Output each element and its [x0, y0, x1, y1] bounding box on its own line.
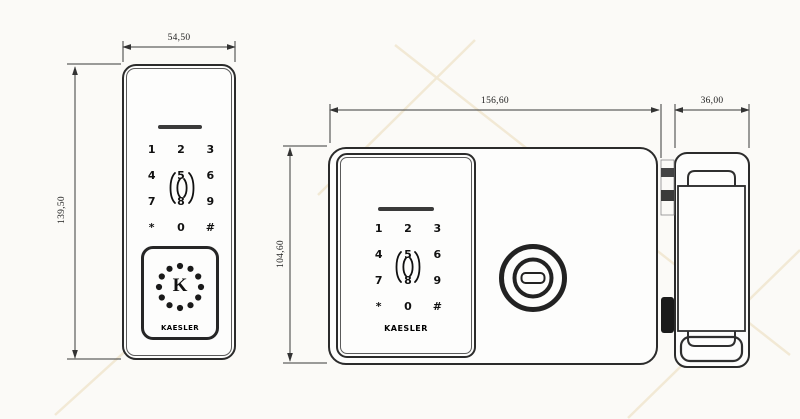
- logo-letter: K: [144, 275, 216, 297]
- brand-wordmark: KAESLER: [144, 324, 216, 332]
- keypad-panel: 1 2 3 4 5 6 7 8 9 * 0 #: [336, 153, 476, 358]
- keypad-key: *: [364, 293, 393, 319]
- dim-front-width-label: 54,50: [147, 33, 211, 43]
- indicator-bar: [158, 125, 202, 129]
- keyhole-knob: [499, 244, 567, 312]
- keypad-key: #: [196, 214, 225, 240]
- keypad-key: 0: [393, 293, 422, 319]
- keypad-key: 4: [137, 162, 166, 188]
- keypad-key: 1: [364, 215, 393, 241]
- keyhole-slot: [521, 272, 546, 284]
- keypad-key: 7: [137, 188, 166, 214]
- dim-body-height-label: 104,60: [276, 222, 286, 286]
- brand-wordmark: KAESLER: [338, 324, 474, 333]
- brand-logo-box: K KAESLER: [141, 246, 219, 340]
- dim-body-width-label: 156,60: [463, 96, 527, 106]
- keypad-key: 2: [166, 136, 195, 162]
- keypad-key: 0: [166, 214, 195, 240]
- rf-signal-icon: [167, 170, 197, 206]
- keypad-key: 2: [393, 215, 422, 241]
- keypad-key: 4: [364, 241, 393, 267]
- keypad-key: #: [423, 293, 452, 319]
- keypad-key: 6: [423, 241, 452, 267]
- indicator-bar: [378, 207, 434, 211]
- front-view: 1 2 3 4 5 6 7 8 9 * 0 #: [122, 64, 236, 360]
- latch-bolt: [661, 297, 674, 333]
- keypad-key: 1: [137, 136, 166, 162]
- keypad-key: 9: [423, 267, 452, 293]
- dim-side-width-label: 36,00: [680, 96, 744, 106]
- keypad-key: 6: [196, 162, 225, 188]
- rf-signal-icon: [393, 249, 423, 285]
- keypad-key: 7: [364, 267, 393, 293]
- dim-front-height-label: 139,50: [57, 178, 67, 242]
- keypad-key: 9: [196, 188, 225, 214]
- main-body-view: 1 2 3 4 5 6 7 8 9 * 0 #: [328, 147, 658, 365]
- hinge-connector: [661, 160, 674, 215]
- keypad-key: *: [137, 214, 166, 240]
- keypad-key: 3: [196, 136, 225, 162]
- side-view-details: [676, 154, 747, 365]
- side-view: [674, 152, 750, 368]
- technical-drawing-canvas: 1 2 3 4 5 6 7 8 9 * 0 #: [0, 0, 800, 419]
- keypad-key: 3: [423, 215, 452, 241]
